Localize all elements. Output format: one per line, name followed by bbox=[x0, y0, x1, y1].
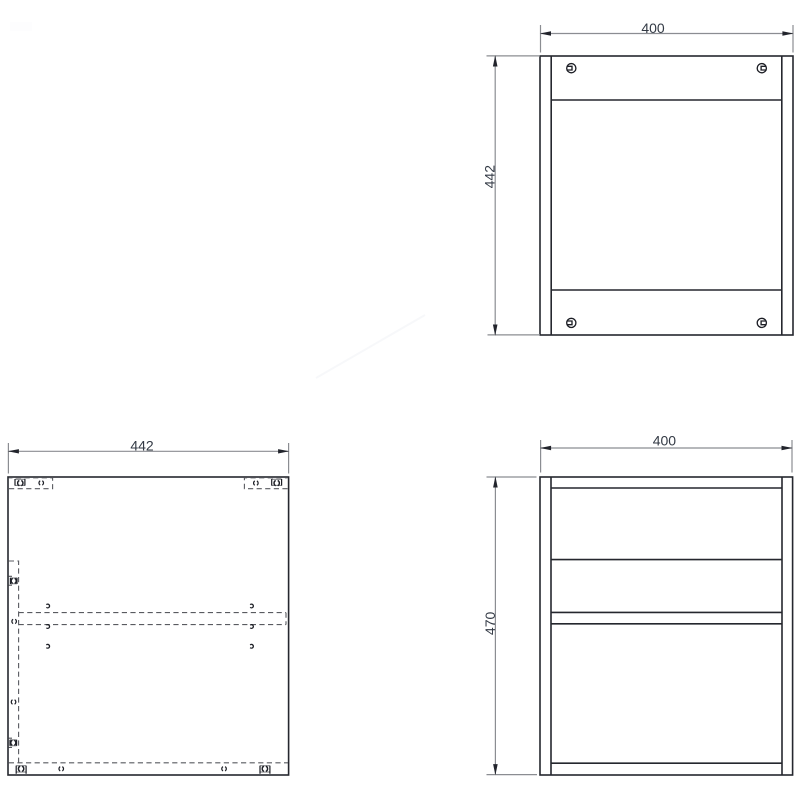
svg-text:442: 442 bbox=[482, 165, 498, 189]
svg-text:470: 470 bbox=[482, 612, 498, 636]
svg-text:442: 442 bbox=[130, 437, 154, 453]
svg-text:400: 400 bbox=[641, 20, 665, 36]
svg-text:400: 400 bbox=[653, 432, 677, 448]
